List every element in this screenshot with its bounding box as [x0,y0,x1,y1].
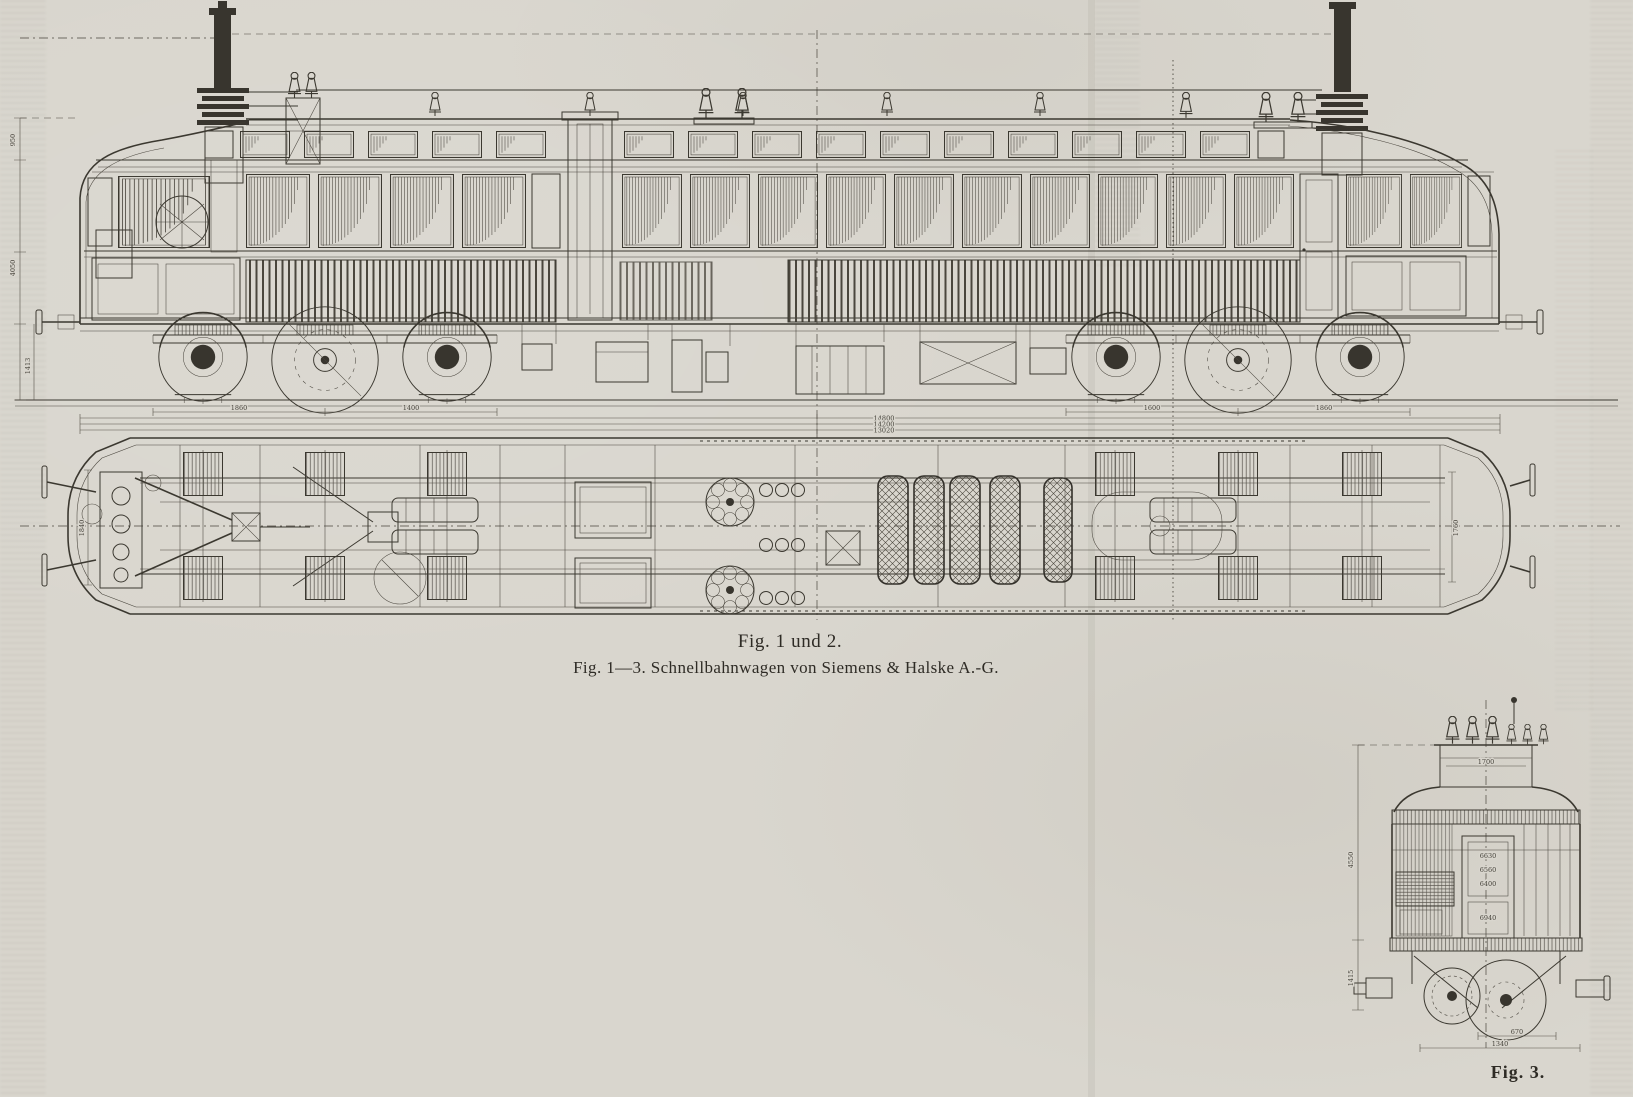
fig3-running-gear [1354,951,1610,1040]
left-mast [197,1,298,252]
dim-label: 670 [1511,1028,1523,1036]
clerestory-window-row [205,131,1284,158]
dim-label: 1415 [1347,970,1355,987]
clerestory-window [1258,131,1284,158]
dim-label: 950 [9,134,17,146]
window [1030,175,1089,248]
window [319,175,382,248]
mast-tip [218,1,227,9]
rod-tip [1511,697,1517,703]
cab-front-window [88,178,112,246]
dim-label: 1860 [231,404,248,412]
window [1346,175,1401,248]
plan-wheel [1219,453,1258,496]
side-door [1300,174,1338,318]
dim-label: 1860 [1316,404,1333,412]
clerestory-window [433,132,482,158]
end-panel [1410,262,1460,310]
window [247,175,310,248]
louver-panel [620,262,712,320]
window [1234,175,1293,248]
dim-label: 1840 [78,520,86,537]
plan-cab-equipment [82,467,426,604]
clerestory-window [497,132,546,158]
mast-base-housing [205,127,243,183]
window [1098,175,1157,248]
fig3-end-view: 1700 6630 6560 6400 6940 [1347,697,1610,1082]
dim-label: 1600 [1144,404,1161,412]
equipment-boxes [522,340,1066,394]
resistor-grid [1044,478,1072,582]
axle-stub-right [1576,976,1610,1000]
resistor-grid [990,476,1020,584]
cab-panel [166,264,234,314]
dim-label: 1413 [24,358,32,375]
window [391,175,454,248]
traction-motor [392,530,478,554]
carrying-wheel [272,307,378,413]
louver-panel [788,260,1300,322]
contact-arms [249,92,298,120]
plan-wheel [184,557,223,600]
right-buffer [1499,310,1543,334]
fig3-roof-insulators [1446,697,1549,744]
traction-motor [1150,530,1236,554]
end-lower-panel [1346,256,1466,316]
mast-duct [211,160,237,252]
roof-lattice-stand [286,72,320,164]
clerestory-window [625,132,674,158]
dim-label: 6560 [1480,866,1497,874]
mast-base-housing [1322,133,1362,175]
wire-insulator-icon [429,92,441,116]
caption-fig-1-3: Fig. 1—3. Schnellbahnwagen von Siemens &… [573,658,999,677]
sill-band [1390,938,1582,951]
window [1166,175,1225,248]
wire-insulator-icon [1034,92,1046,116]
roof-wire-assembly [286,72,1322,164]
resistor-grid [914,476,944,584]
plan-wheel [1096,453,1135,496]
axle-stub-left [1354,978,1392,998]
roof-shoulder-left [1394,787,1440,812]
plan-wheel [428,453,467,496]
window [894,175,953,248]
clerestory-window [1201,132,1250,158]
dim-label: 4050 [9,260,17,277]
narrow-pier-window [532,174,560,248]
window [622,175,681,248]
clerestory-window [305,132,354,158]
mast-column [214,14,231,88]
right-bogie [1066,307,1410,413]
roof-shoulder-right [1532,787,1578,812]
plan-wheel [1219,557,1258,600]
left-end-profile [80,122,246,324]
traction-motor [392,498,478,522]
contactor-group [760,484,805,605]
window [1410,175,1461,248]
caption-fig-1-2: Fig. 1 und 2. [738,631,842,652]
contact-arms [1296,100,1316,128]
window [826,175,885,248]
wire-insulator-icon [1180,92,1193,118]
radiator-bench [1396,872,1454,906]
end-door: 6630 6560 6400 6940 [1462,836,1514,938]
mid-duct-tower [562,112,618,320]
clerestory-window [817,132,866,158]
dim-label: 13020 [874,427,895,435]
window [463,175,526,248]
plan-wheel [306,453,345,496]
plan-wheel [306,557,345,600]
plan-wheel [428,557,467,600]
carrying-wheel [1185,307,1291,413]
dim-label: 4550 [1347,852,1355,869]
plan-wheel [1343,557,1382,600]
right-mast [1296,2,1368,175]
fig1-side-elevation: 950 4050 1413 1860 1400 1600 1860 14800 … [9,1,1618,620]
clerestory-window [369,132,418,158]
door-handle-icon [1302,248,1305,251]
plan-wheel [1343,453,1382,496]
clerestory-window [1009,132,1058,158]
cab-panel [98,264,158,314]
bell-insulator-pair-right [1254,92,1312,128]
end-panel [1352,262,1402,310]
window [962,175,1021,248]
fig2-plan-view: 1840 1760 [20,438,1620,614]
louver-panel [246,260,556,322]
dim-label: 1760 [1452,520,1460,537]
dim-label: 6940 [1480,914,1497,922]
clerestory-window [205,131,233,158]
dim-label: 1700 [1478,758,1495,766]
dim-label: 6630 [1480,852,1497,860]
clerestory-window [689,132,738,158]
lower-band [92,256,1466,322]
eaves-vent-band [1392,810,1580,824]
dim-label: 1340 [1492,1040,1509,1048]
plan-wheel [1096,557,1135,600]
dim-label: 6400 [1480,880,1497,888]
insulator-discs [197,88,249,125]
clerestory-window [241,132,290,158]
resistor-grid [950,476,980,584]
window [758,175,817,248]
dim-label: 1400 [403,404,420,412]
clerestory-window [1137,132,1186,158]
resistor-grid [878,476,908,584]
plan-wheel [184,453,223,496]
clerestory-window [945,132,994,158]
clerestory-window [1073,132,1122,158]
clerestory-window [881,132,930,158]
traction-motor [1150,498,1236,522]
left-buffer [36,310,80,334]
drawing-plate: 950 4050 1413 1860 1400 1600 1860 14800 … [0,0,1633,1097]
mast-cap [209,8,236,15]
left-bogie [153,307,497,413]
mast-column [1334,8,1351,92]
plate-captions: Fig. 1 und 2. Fig. 1—3. Schnellbahnwagen… [573,631,999,677]
mast-cap [1329,2,1356,9]
window [690,175,749,248]
cab-cabinet [96,230,132,278]
wire-insulator-icon [881,92,893,116]
scanned-page: 950 4050 1413 1860 1400 1600 1860 14800 … [0,0,1633,1097]
clerestory-window [753,132,802,158]
caption-fig-3: Fig. 3. [1491,1062,1546,1082]
